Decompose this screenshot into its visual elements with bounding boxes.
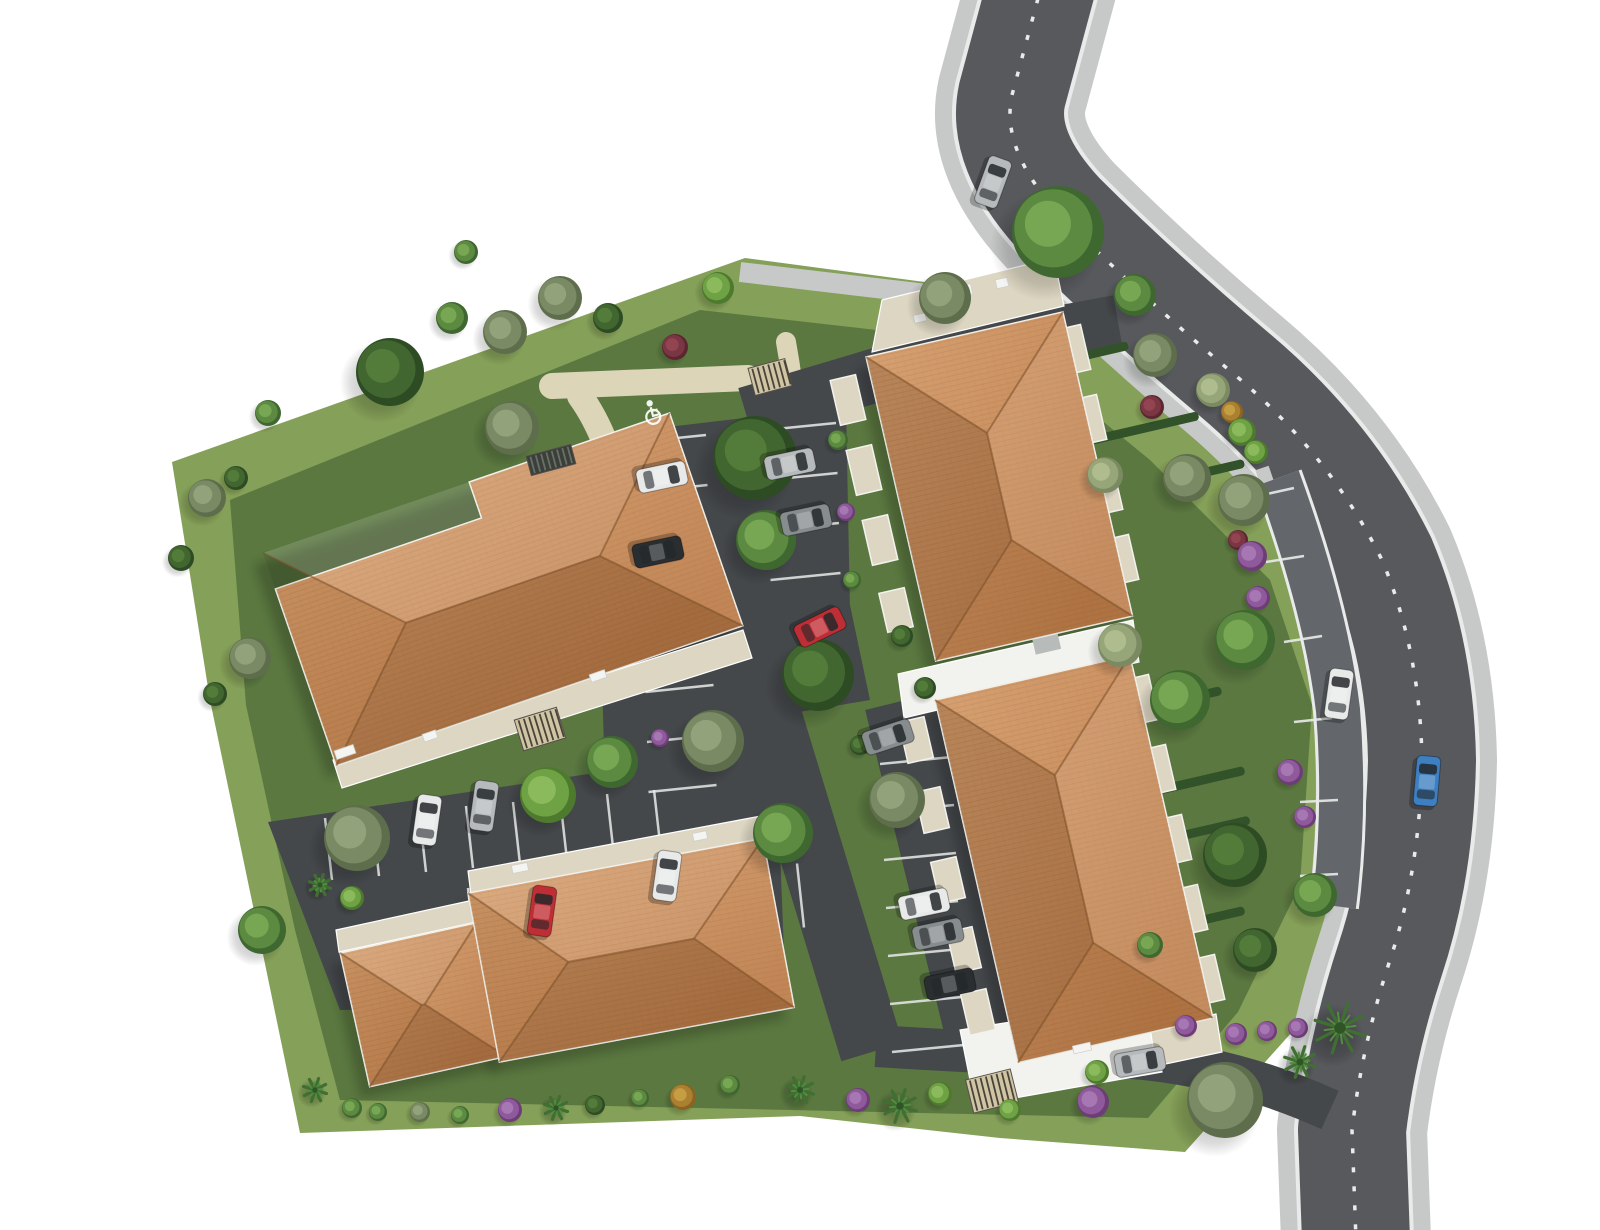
tree-canopy-light	[654, 732, 663, 741]
tree-canopy-light	[761, 813, 791, 843]
building-b-west-roof-ridge	[422, 1004, 425, 1005]
tree-canopy-light	[849, 1092, 861, 1104]
tree-canopy-light	[1088, 1064, 1100, 1076]
tree-canopy-light	[245, 914, 269, 938]
car-roof	[1131, 1053, 1148, 1071]
tree-canopy-light	[634, 1092, 643, 1101]
tree-canopy-light	[674, 1088, 687, 1101]
tree-canopy-light	[1120, 281, 1141, 302]
tree-canopy-light	[1260, 1024, 1270, 1034]
tree-canopy-light	[725, 429, 767, 471]
tree-canopy-light	[1247, 444, 1259, 456]
tree-canopy-light	[1092, 463, 1110, 481]
tree-canopy-light	[1201, 378, 1218, 395]
tree-canopy-light	[528, 776, 556, 804]
tree-canopy-light	[926, 280, 952, 306]
tree-canopy-light	[917, 681, 928, 692]
tree-canopy-light	[1249, 590, 1261, 602]
tree	[162, 545, 194, 578]
tree-canopy-light	[1297, 810, 1308, 821]
tree-canopy-light	[1299, 880, 1321, 902]
tree-canopy-light	[1081, 1091, 1097, 1107]
tree-canopy-light	[172, 549, 185, 562]
car-roof	[475, 799, 493, 815]
tree-canopy-light	[1241, 546, 1256, 561]
tree-canopy-light	[691, 720, 722, 751]
tree-canopy-light	[1224, 405, 1235, 416]
tree-canopy-light	[666, 338, 679, 351]
tree-canopy-light	[366, 349, 400, 383]
tree-canopy-light	[345, 1101, 355, 1111]
tree	[428, 302, 468, 342]
car-roof	[1330, 687, 1348, 703]
tree-canopy-light	[597, 308, 612, 323]
tree-canopy-light	[593, 744, 619, 770]
tree-canopy-light	[1002, 1103, 1013, 1114]
tree-canopy-light	[706, 277, 722, 293]
tree-canopy-light	[259, 404, 272, 417]
tree-canopy-light	[1281, 763, 1294, 776]
tree-canopy-light	[894, 629, 905, 640]
tree-canopy-light	[457, 244, 469, 256]
tree-canopy-light	[1141, 936, 1154, 949]
car-windshield	[1419, 763, 1438, 775]
tree-canopy-light	[493, 410, 520, 437]
car-rear-window	[1416, 789, 1435, 800]
tree-canopy-light	[723, 1078, 733, 1088]
palm-crown	[318, 883, 323, 888]
tree-canopy-light	[1104, 630, 1126, 652]
tree-canopy-light	[501, 1102, 513, 1114]
car-roof	[418, 813, 436, 829]
tree-canopy-light	[588, 1098, 598, 1108]
tree-canopy-light	[831, 433, 841, 443]
tree-canopy-light	[840, 506, 849, 515]
palm-crown	[1334, 1022, 1345, 1033]
tree	[448, 240, 478, 270]
tree-canopy-light	[792, 651, 828, 687]
tree-canopy-light	[1178, 1019, 1189, 1030]
tree-canopy-light	[1158, 680, 1188, 710]
car-roof	[533, 904, 551, 920]
site-plan-canvas	[0, 0, 1600, 1230]
tree-canopy-light	[343, 890, 355, 902]
tree-canopy-light	[1223, 620, 1253, 650]
tree-canopy-light	[1198, 1074, 1236, 1112]
tree-canopy-light	[1291, 1021, 1301, 1031]
tree-canopy-light	[1225, 482, 1251, 508]
palm-crown	[1296, 1058, 1303, 1065]
tree-canopy-light	[1143, 399, 1155, 411]
tree-canopy-light	[413, 1105, 423, 1115]
tree-canopy-light	[744, 520, 774, 550]
tree-canopy-light	[489, 317, 511, 339]
tree-canopy-light	[877, 781, 905, 809]
site-plan-svg	[0, 0, 1600, 1230]
tree-canopy-light	[333, 816, 366, 849]
car-blue	[1409, 755, 1442, 811]
tree-canopy-light	[544, 283, 566, 305]
palm-crown	[797, 1087, 803, 1093]
tree-canopy-light	[454, 1109, 463, 1118]
car-roof	[658, 869, 676, 885]
tree-canopy-light	[440, 307, 456, 323]
tree-canopy-light	[206, 686, 218, 698]
tree-canopy-light	[1170, 462, 1194, 486]
tree-canopy-light	[235, 644, 256, 665]
tree-canopy-light	[227, 470, 239, 482]
palm-crown	[312, 1087, 317, 1092]
tree-canopy-light	[931, 1086, 943, 1098]
tree-canopy-light	[846, 574, 855, 583]
tree-canopy-light	[1212, 833, 1244, 865]
tree-canopy-light	[1025, 201, 1071, 247]
tree-canopy-light	[1239, 935, 1261, 957]
car-roof	[1418, 774, 1435, 789]
tree-canopy-light	[1228, 1027, 1239, 1038]
palm-crown	[896, 1102, 903, 1109]
tree-canopy-light	[193, 485, 212, 504]
tree-canopy-light	[372, 1106, 381, 1115]
tree-canopy-light	[1139, 340, 1161, 362]
tree-canopy-light	[1232, 422, 1246, 436]
palm-crown	[553, 1105, 558, 1110]
tree-canopy-light	[1231, 533, 1241, 543]
